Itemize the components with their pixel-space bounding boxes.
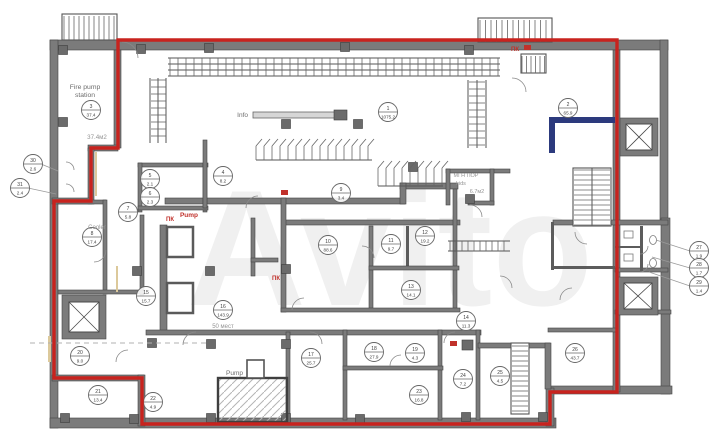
kids-room-label-2: kids (456, 181, 466, 187)
room-area: 8.2 (220, 179, 227, 184)
room-number: 22 (150, 396, 156, 402)
room-area: 2.6 (30, 167, 37, 172)
kids-room-area-label: 6.7м2 (470, 189, 485, 195)
room-marker: 1725.7 (302, 349, 321, 368)
room-marker: 1515.7 (137, 287, 156, 306)
room-area: 14.1 (407, 293, 416, 298)
seats-label: 50 мест (212, 324, 234, 330)
column (133, 267, 142, 276)
room-marker: 302.6 (24, 155, 43, 174)
room-area: 1.4 (696, 289, 703, 294)
room-marker: 265.9 (559, 99, 578, 118)
room-marker: 209.0 (71, 347, 90, 366)
column (207, 340, 216, 349)
room-area: 1.9 (696, 254, 703, 259)
room-marker: 224.9 (144, 393, 163, 412)
room-area: 17.4 (88, 240, 97, 245)
room-number: 2 (567, 102, 570, 108)
room-marker: 2113.4 (89, 386, 108, 405)
room-number: 8 (91, 231, 94, 237)
stair-bottom-narrow (511, 343, 529, 414)
room-marker: 11075.2 (379, 103, 398, 122)
fire-hydrant-label-2: ПК (272, 276, 280, 282)
room-marker: 281.7 (690, 259, 709, 278)
room-area: 7.2 (460, 382, 467, 387)
room-marker: 1411.3 (457, 312, 476, 331)
room-area: 65.9 (564, 111, 573, 116)
room-number: 3 (90, 104, 93, 110)
room-area: 43.7 (571, 356, 580, 361)
room-number: 10 (325, 239, 331, 245)
column (207, 414, 216, 423)
room-number: 26 (572, 347, 578, 353)
room-area: 4.9 (150, 405, 157, 410)
fire-pump-area-label: 37.4м2 (87, 134, 107, 141)
room-number: 14 (463, 315, 469, 321)
room-area: 15.7 (142, 299, 151, 304)
room-area: 2.3 (147, 200, 154, 205)
room-marker: 1827.9 (365, 343, 384, 362)
room-marker: 337.4 (82, 101, 101, 120)
room-marker: 62.3 (141, 188, 160, 207)
room-number: 29 (696, 280, 702, 286)
pump-lower-label: Pump (226, 370, 243, 377)
room-marker: 16143.9 (214, 301, 233, 320)
room-number: 15 (143, 290, 149, 296)
column (282, 340, 291, 349)
room-number: 12 (422, 230, 428, 236)
room-area: 143.9 (217, 313, 229, 318)
room-number: 16 (220, 304, 226, 310)
room-number: 21 (95, 389, 101, 395)
room-number: 19 (412, 347, 418, 353)
room-number: 17 (308, 352, 314, 358)
floor-plan-page: Avito (0, 0, 720, 445)
column (282, 120, 291, 129)
room-area: 3.4 (338, 196, 345, 201)
kids-room-label-1: МГН ПОР (454, 173, 479, 179)
room-number: 28 (696, 262, 702, 268)
elevator-left (62, 295, 106, 339)
column (137, 45, 146, 54)
room-area: 25.7 (307, 361, 316, 366)
room-area: 37.4 (87, 113, 96, 118)
room-area: 1075.2 (381, 115, 395, 120)
column (205, 44, 214, 53)
column (59, 46, 68, 55)
room-marker: 291.4 (690, 277, 709, 296)
room-marker: 75.8 (119, 203, 138, 222)
room-area: 9.0 (77, 359, 84, 364)
room-marker: 254.5 (491, 367, 510, 386)
room-number: 30 (30, 158, 36, 164)
fire-hydrant-label-1: ПК (166, 217, 174, 223)
room-area: 2.1 (147, 182, 154, 187)
room-marker: 312.4 (11, 179, 30, 198)
pump-upper-label: Pump (180, 212, 198, 219)
room-marker: 247.2 (454, 370, 473, 389)
room-area: 2.4 (17, 191, 24, 196)
room-area: 88.6 (324, 248, 333, 253)
room-area: 5.8 (125, 215, 132, 220)
room-number: 11 (388, 238, 393, 244)
room-area: 27.9 (370, 355, 379, 360)
fire-pump-label-1: Fire pump (70, 84, 101, 91)
fire-hydrant-label-3: ПК (511, 47, 519, 53)
elevator-right-upper (620, 118, 658, 156)
room-marker: 1088.6 (319, 236, 338, 255)
room-area: 1.7 (696, 271, 703, 276)
room-marker: 52.1 (141, 170, 160, 189)
room-number: 13 (408, 284, 414, 290)
column (206, 267, 215, 276)
room-marker: 194.3 (406, 344, 425, 363)
room-marker: 93.4 (332, 184, 351, 203)
room-area: 19.2 (421, 239, 430, 244)
room-marker: 48.2 (214, 167, 233, 186)
column (462, 413, 471, 422)
room-area: 4.5 (497, 379, 504, 384)
room-area: 13.4 (94, 398, 103, 403)
column (354, 120, 363, 129)
room-number: 4 (222, 170, 225, 176)
room-area: 9.7 (388, 247, 395, 252)
room-area: 11.3 (462, 324, 471, 329)
elevator-right-lower (618, 277, 658, 315)
room-marker: 1219.2 (416, 227, 435, 246)
room-marker: 1314.1 (402, 281, 421, 300)
column (466, 195, 475, 204)
column (59, 118, 68, 127)
floor-plan: Avito (0, 0, 720, 445)
column (130, 415, 139, 424)
room-marker: 271.9 (690, 242, 709, 261)
info-label: Info (237, 112, 248, 119)
cooler-label: Cooler (88, 225, 106, 231)
room-number: 7 (127, 206, 130, 212)
room-number: 25 (497, 370, 503, 376)
room-number: 23 (416, 389, 422, 395)
fire-pump-label-2: station (75, 92, 95, 99)
room-area: 16.8 (415, 398, 424, 403)
interior-stair-small (521, 54, 546, 73)
column (61, 414, 70, 423)
room-number: 1 (387, 106, 390, 112)
room-number: 5 (149, 173, 152, 179)
column (282, 265, 291, 274)
room-number: 9 (340, 187, 343, 193)
column (539, 413, 548, 422)
room-number: 20 (77, 350, 83, 356)
room-number: 31 (17, 182, 23, 188)
column (341, 43, 350, 52)
room-marker: 2643.7 (566, 344, 585, 363)
room-marker: 119.7 (382, 235, 401, 254)
room-marker: 2316.8 (410, 386, 429, 405)
column (465, 46, 474, 55)
column (356, 415, 365, 424)
room-number: 27 (696, 245, 702, 251)
room-number: 6 (149, 191, 152, 197)
room-number: 24 (460, 373, 466, 379)
room-number: 18 (371, 346, 377, 352)
room-area: 4.3 (412, 356, 419, 361)
